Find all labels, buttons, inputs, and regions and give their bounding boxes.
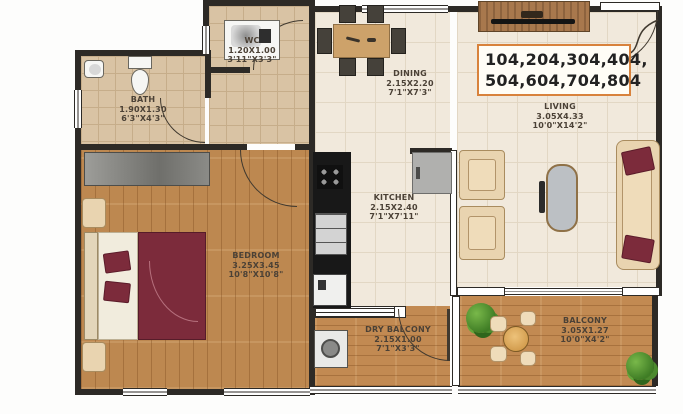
living-size-m: 3.05X4.33 (514, 112, 606, 122)
balcony-chair (490, 316, 507, 332)
unit-numbers-line1: 104,204,304,404, (485, 49, 623, 70)
platform-handle (416, 167, 420, 179)
wall-wc-top (203, 0, 315, 6)
dining-size-m: 2.15X2.20 (366, 79, 454, 89)
bed-duvet (138, 232, 206, 340)
living-balcony-slider (505, 288, 622, 295)
wall-balcony-divider (452, 296, 460, 386)
room-label-balcony: BALCONY 3.05X1.27 10'0"X4'2" (538, 316, 632, 345)
dining-chair (339, 5, 356, 23)
dining-chair (391, 28, 406, 54)
balcony-size-ft: 10'0"X4'2" (538, 335, 632, 345)
room-label-bedroom: BEDROOM 3.25X3.45 10'8"X10'8" (208, 251, 304, 280)
armchair (459, 206, 505, 260)
duvet-fold (149, 261, 198, 322)
dining-size-ft: 7'1"X7'3" (366, 88, 454, 98)
balcony-chair (520, 351, 536, 366)
bath-sink-bowl (89, 64, 101, 75)
plant-icon (626, 352, 654, 380)
bedroom-window-right (224, 388, 310, 396)
wc-size-ft: 3'11"X3'3" (208, 55, 296, 65)
wall-bedroom-top-stub (295, 144, 309, 150)
balcony-chair (490, 346, 507, 362)
room-label-dining: DINING 2.15X2.20 7'1"X7'3" (366, 69, 454, 98)
bath-name: BATH (99, 95, 187, 105)
balcony-size-m: 3.05X1.27 (538, 326, 632, 336)
dry-balcony-railing (310, 386, 452, 394)
kitchen-size-ft: 7'1"X7'11" (352, 212, 436, 222)
fridge-icon (313, 274, 347, 306)
tv-console (478, 1, 590, 32)
bath-window (74, 90, 82, 128)
room-label-living: LIVING 3.05X4.33 10'0"X14'2" (514, 102, 606, 131)
wardrobe (84, 152, 210, 186)
dining-table (333, 24, 390, 58)
wall-living-bottom-right (622, 287, 660, 296)
balcony-table (503, 326, 529, 352)
kitchen-sink-icon (315, 213, 347, 255)
room-label-dry-balcony: DRY BALCONY 2.15X1.00 7'1"X3'3" (344, 325, 452, 354)
bedroom-size-m: 3.25X3.45 (208, 261, 304, 271)
tv-icon (491, 19, 575, 24)
dry-balcony-name: DRY BALCONY (344, 325, 452, 335)
unit-numbers-line2: 504,604,704,804 (485, 70, 623, 91)
bed (84, 232, 206, 340)
dining-chair (317, 28, 332, 54)
stove-icon (317, 165, 343, 189)
armchair-cushion (468, 159, 496, 191)
armchair-cushion (468, 216, 496, 250)
dry-balcony-size-m: 2.15X1.00 (344, 335, 452, 345)
room-label-bath: BATH 1.90X1.30 6'3"X4'3" (99, 95, 187, 124)
room-label-kitchen: KITCHEN 2.15X2.40 7'1"X7'11" (352, 193, 436, 222)
wall-balcony-right (652, 296, 658, 386)
wall-wc-bottom (205, 67, 250, 73)
balcony-name: BALCONY (538, 316, 632, 326)
floor-plan: 104,204,304,404, 504,604,704,804 (0, 0, 683, 414)
bath-size-ft: 6'3"X4'3" (99, 114, 187, 124)
bed-pillow (103, 281, 131, 304)
armchair (459, 150, 505, 200)
bed-pillow (103, 250, 132, 273)
dining-name: DINING (366, 69, 454, 79)
living-name: LIVING (514, 102, 606, 112)
room-label-wc: WC 1.20X1.00 3'11"X3'3" (208, 36, 296, 65)
dining-table-setting (367, 38, 376, 42)
sofa (616, 140, 660, 270)
bed-headboard (84, 232, 98, 340)
fridge-handle (318, 280, 326, 290)
bedroom-name: BEDROOM (208, 251, 304, 261)
coffee-table (546, 164, 578, 232)
nightstand (82, 198, 106, 228)
bath-size-m: 1.90X1.30 (99, 105, 187, 115)
dining-table-setting (346, 36, 360, 42)
wc-size-m: 1.20X1.00 (208, 46, 296, 56)
washing-machine-icon (314, 330, 348, 368)
kitchen-counter (313, 152, 351, 308)
unit-numbers-box: 104,204,304,404, 504,604,704,804 (477, 44, 631, 96)
washer-drum (321, 339, 340, 358)
nightstand (82, 342, 106, 372)
living-size-ft: 10'0"X14'2" (514, 121, 606, 131)
bedroom-window-left (123, 388, 167, 396)
dry-balcony-size-ft: 7'1"X3'3" (344, 344, 452, 354)
balcony-railing (458, 386, 656, 394)
wc-name: WC (208, 36, 296, 46)
wall-bedroom-top (75, 144, 247, 150)
kitchen-name: KITCHEN (352, 193, 436, 203)
sofa-pillow (621, 235, 655, 264)
kitchen-size-m: 2.15X2.40 (352, 203, 436, 213)
kitchen-platform (412, 152, 452, 194)
media-unit (539, 181, 545, 213)
bedroom-size-ft: 10'8"X10'8" (208, 270, 304, 280)
dining-chair (339, 58, 356, 76)
balcony-chair (520, 311, 536, 326)
toilet-tank-icon (128, 56, 152, 69)
tv-base-icon (521, 11, 543, 18)
entrance-door-leaf (600, 2, 660, 11)
bath-sink-icon (84, 60, 104, 78)
wall-living-bottom-left (457, 287, 505, 296)
dining-chair (367, 5, 384, 23)
